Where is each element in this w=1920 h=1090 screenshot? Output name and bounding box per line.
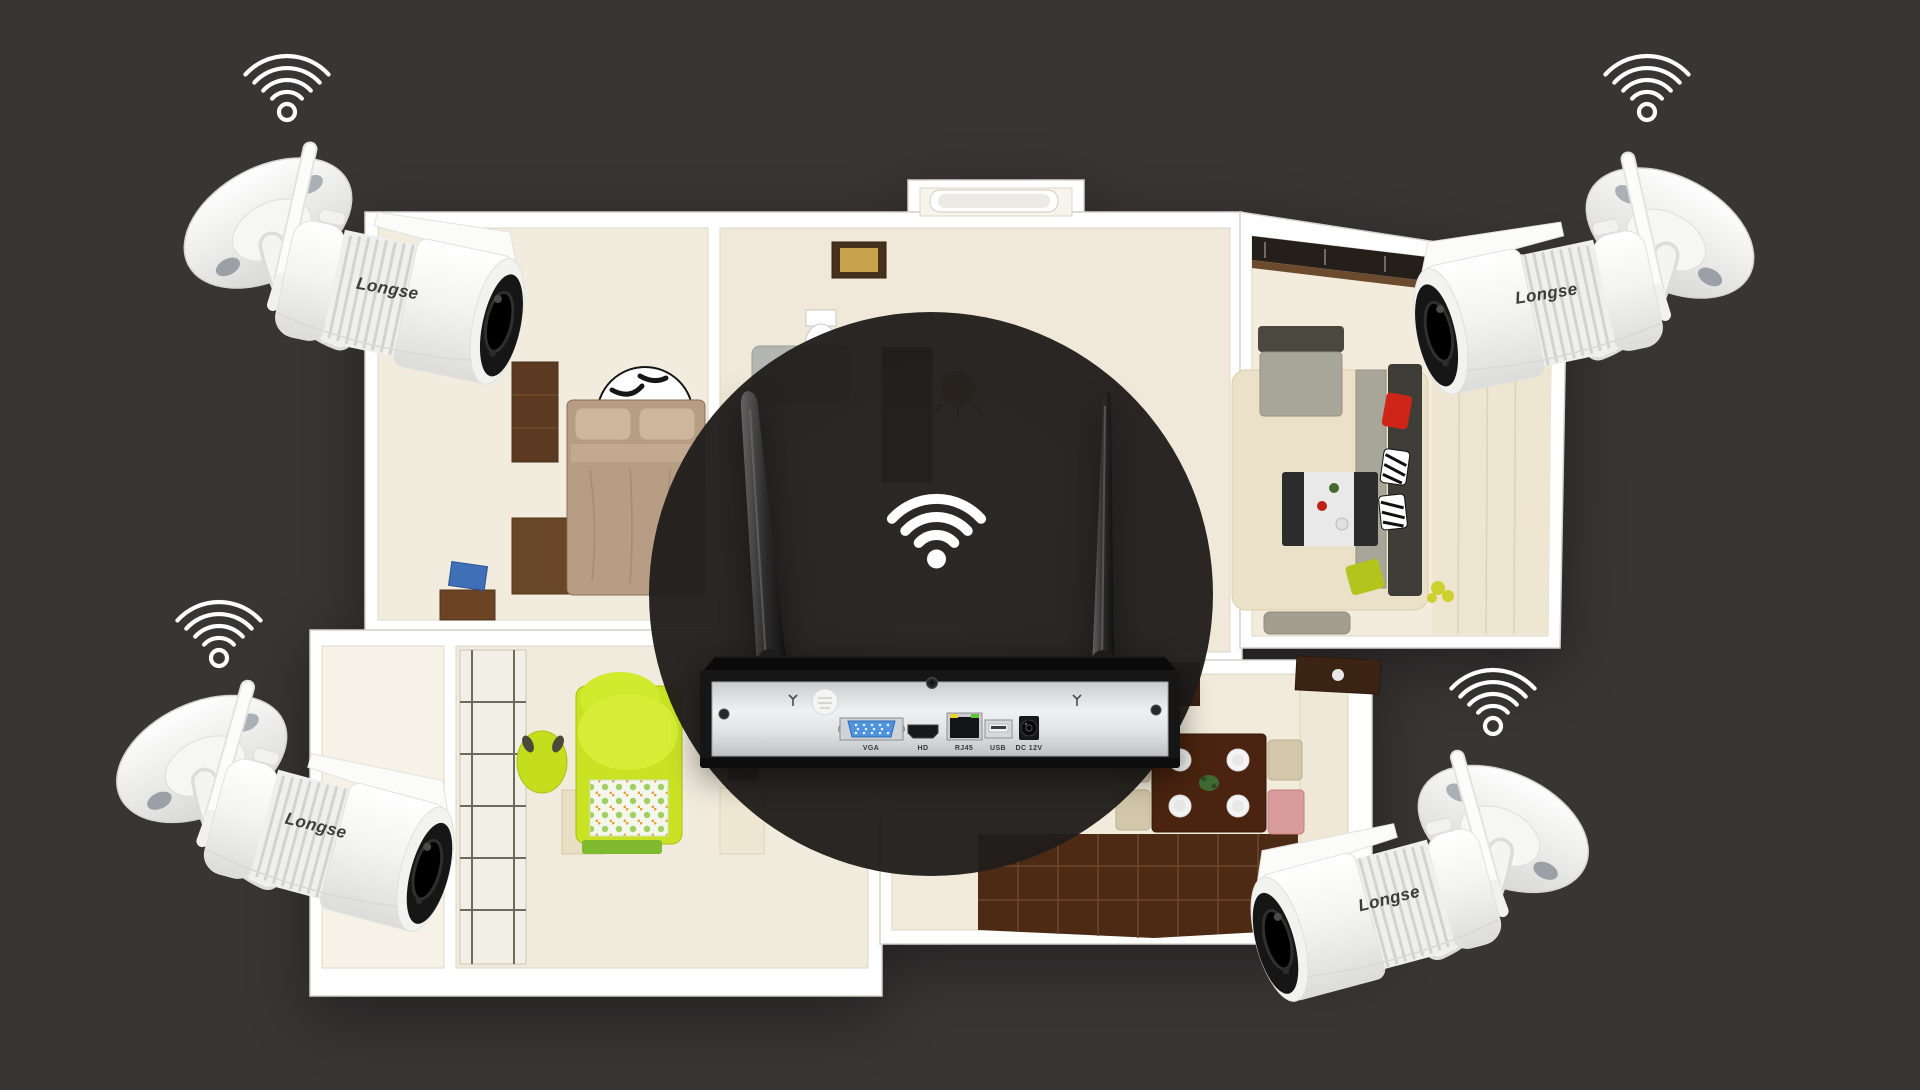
vga-port: [839, 718, 905, 740]
wifi-signal-icon-top-left: [240, 46, 334, 124]
nvr-rear-panel: VGA HD RJ45 USB DC 12V: [690, 380, 1190, 780]
power-jack: [1019, 716, 1039, 740]
port-label-power: DC 12V: [1016, 745, 1043, 752]
camera-top-left-art: [160, 127, 535, 457]
camera-bottom-right: Longse: [1232, 727, 1624, 1076]
camera-top-right: Longse: [1403, 137, 1778, 467]
hdmi-port: [908, 725, 938, 738]
wifi-signal-icon-mid-left: [172, 592, 266, 670]
nvr-antenna-right: [1091, 391, 1115, 674]
nvr-chassis: [700, 656, 1180, 768]
camera-bottom-right-art: [1232, 727, 1624, 1076]
wifi-signal-icon-mid-right: [1446, 660, 1540, 738]
scene: VGA HD RJ45 USB DC 12V Longse Longse Lon…: [0, 0, 1920, 1090]
nvr-sticker: [812, 689, 838, 715]
camera-bottom-left-art: [82, 657, 474, 1006]
port-label-hdmi: HD: [918, 745, 929, 752]
ethernet-port: [947, 713, 982, 740]
usb-port: [985, 720, 1012, 738]
camera-top-left: Longse: [160, 127, 535, 457]
camera-top-right-art: [1403, 137, 1778, 467]
nvr-recorder: VGA HD RJ45 USB DC 12V: [690, 380, 1190, 780]
port-label-usb: USB: [990, 745, 1006, 752]
nvr-antenna-left: [741, 391, 787, 675]
wifi-hub-icon: [873, 483, 1000, 570]
camera-bottom-left: Longse: [82, 657, 474, 1006]
wifi-signal-icon-top-right: [1600, 46, 1694, 124]
port-label-vga: VGA: [863, 745, 879, 752]
port-label-ethernet: RJ45: [955, 745, 973, 752]
